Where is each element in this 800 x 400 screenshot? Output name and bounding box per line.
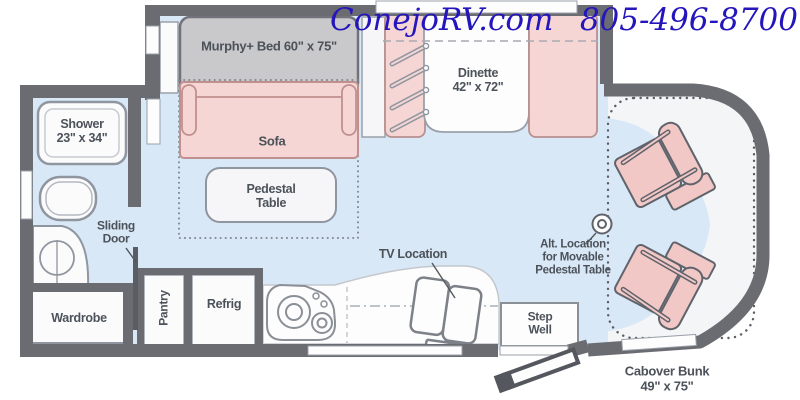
- murphy-bed-label: Murphy+ Bed 60" x 75": [201, 40, 337, 55]
- sofa-label: Sofa: [259, 135, 286, 150]
- cabinet-left-of-bed: [160, 22, 178, 93]
- window-left-upper: [146, 26, 159, 54]
- pedestal-mount-icon: [593, 215, 612, 234]
- tv-location-label: TV Location: [379, 247, 447, 261]
- floorplan-drawing: [0, 0, 800, 400]
- bath-door-panel: [147, 99, 160, 144]
- toilet: [40, 177, 96, 220]
- pedestal-table-label: Pedestal Table: [246, 182, 295, 210]
- sliding-door-label: Sliding Door: [97, 220, 135, 247]
- wardrobe-label: Wardrobe: [51, 311, 106, 325]
- window-left-wall: [21, 171, 32, 219]
- shower-label: Shower 23" x 34": [57, 117, 108, 145]
- sofa-armrest-right: [342, 85, 356, 135]
- dealer-website: ConejoRV.com: [330, 2, 553, 38]
- dealer-header: ConejoRV.com 805-496-8700: [330, 2, 798, 38]
- step-well-label: Step Well: [528, 311, 553, 338]
- sofa-armrest-left: [182, 85, 196, 135]
- alt-location-label: Alt. Location for Movable Pedestal Table: [535, 239, 610, 278]
- cabover-bunk-label: Cabover Bunk 49" x 75": [625, 364, 710, 393]
- refrig-label: Refrig: [207, 297, 241, 311]
- window-bottom-wall: [308, 346, 462, 355]
- pantry-label: Pantry: [157, 290, 170, 326]
- dinette-label: Dinette 42" x 72": [453, 66, 504, 94]
- dealer-phone: 805-496-8700: [580, 2, 798, 38]
- rv-floorplan: ConejoRV.com 805-496-8700 Murphy+ Bed 60…: [0, 0, 800, 400]
